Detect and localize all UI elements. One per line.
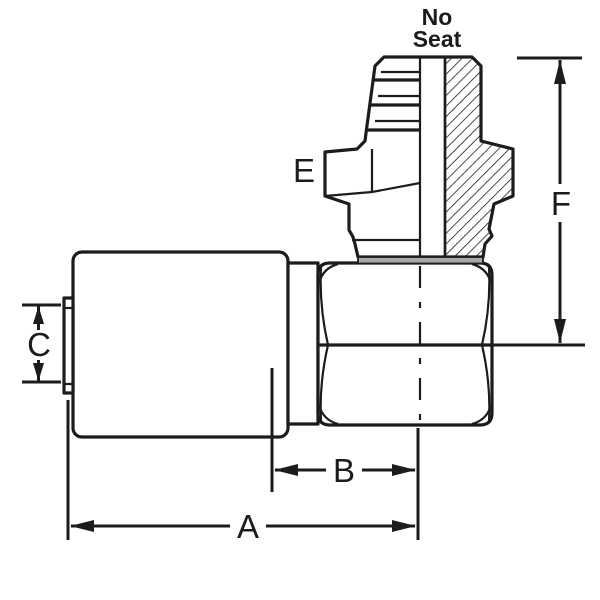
shell-body xyxy=(73,252,288,437)
diagram-canvas: C F B A E No Seat xyxy=(0,0,600,600)
shell-step-collar xyxy=(288,263,318,424)
elbow-hex-body xyxy=(318,263,492,426)
dim-c-label: C xyxy=(27,326,51,363)
no-seat-annotation: No Seat xyxy=(404,2,472,52)
dim-f-label: F xyxy=(551,185,571,222)
dim-e-label: E xyxy=(293,152,315,189)
dim-c-arrow-down xyxy=(33,363,44,381)
annotation-line2: Seat xyxy=(413,26,462,52)
dim-f-arrow-down xyxy=(554,319,566,343)
fitting-diagram: C F B A E No Seat xyxy=(0,0,600,600)
male-thread-fitting xyxy=(325,57,513,264)
dim-b-label: B xyxy=(333,452,355,489)
dim-f-arrow-up xyxy=(554,60,566,84)
section-hatch-region xyxy=(445,57,513,257)
dim-c-arrow-up xyxy=(33,306,44,324)
shell-end-collar xyxy=(64,298,73,393)
dim-a-label: A xyxy=(237,508,259,545)
crimp-shell xyxy=(64,252,318,437)
dim-b-arrow-right xyxy=(392,464,416,476)
dimension-f: F xyxy=(517,58,582,343)
dimension-c: C xyxy=(22,305,61,382)
dim-a-arrow-right xyxy=(392,520,416,532)
seal-washer xyxy=(358,257,483,264)
dim-a-arrow-left xyxy=(70,520,94,532)
dim-b-arrow-left xyxy=(274,464,298,476)
